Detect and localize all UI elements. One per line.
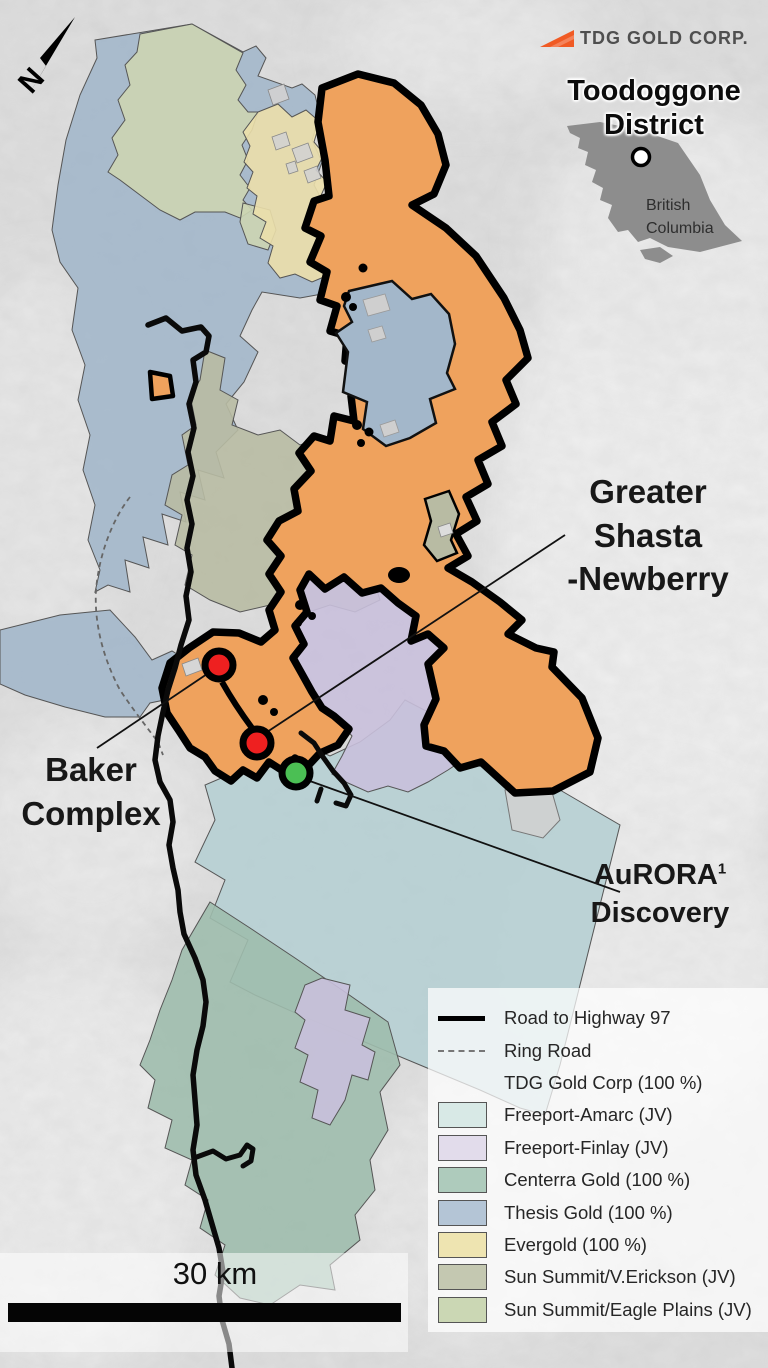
legend-row-ring-road: Ring Road (438, 1034, 768, 1066)
legend-row-road: Road to Highway 97 (438, 1002, 768, 1034)
verickson-swatch (438, 1264, 504, 1290)
map-title: Toodoggone District (538, 74, 768, 142)
legend-panel: Road to Highway 97 Ring Road TDG Gold Co… (428, 988, 768, 1332)
shasta-line2: Shasta (528, 514, 768, 558)
map-title-line1: Toodoggone (538, 74, 768, 108)
district-location-dot (633, 149, 650, 166)
road-line-swatch (438, 1016, 504, 1021)
legend-row-tdg: TDG Gold Corp (100 %) (438, 1067, 768, 1099)
legend-row-eagle-plains: Sun Summit/Eagle Plains (JV) (438, 1294, 768, 1326)
map-title-line2: District (538, 108, 768, 142)
brand-logo-text: TDG GOLD CORP. (580, 28, 749, 49)
map-figure: TDG GOLD CORP. Toodoggone District Briti… (0, 0, 768, 1368)
eagle-plains-swatch (438, 1297, 504, 1323)
legend-label: Freeport-Finlay (JV) (504, 1137, 668, 1159)
legend-row-thesis: Thesis Gold (100 %) (438, 1196, 768, 1228)
baker-line2: Complex (0, 792, 182, 836)
bc-label-line2: Columbia (646, 217, 714, 240)
amarc-swatch (438, 1102, 504, 1128)
legend-label: Sun Summit/V.Erickson (JV) (504, 1266, 736, 1288)
evergold-swatch (438, 1232, 504, 1258)
scale-bar-label: 30 km (160, 1256, 270, 1292)
legend-label: Freeport-Amarc (JV) (504, 1104, 673, 1126)
label-greater-shasta-newberry: Greater Shasta -Newberry (528, 470, 768, 601)
marker-shasta-deposit (243, 729, 271, 757)
marker-baker-deposit (205, 651, 233, 679)
centerra-swatch (438, 1167, 504, 1193)
legend-label: Thesis Gold (100 %) (504, 1202, 673, 1224)
legend-row-amarc: Freeport-Amarc (JV) (438, 1099, 768, 1131)
aurora-line1: AuRORA1 (552, 856, 768, 894)
legend-label: Road to Highway 97 (504, 1007, 671, 1029)
thesis-swatch (438, 1200, 504, 1226)
legend-row-centerra: Centerra Gold (100 %) (438, 1164, 768, 1196)
legend-label: TDG Gold Corp (100 %) (504, 1072, 702, 1094)
legend-label: Centerra Gold (100 %) (504, 1169, 690, 1191)
legend-label: Sun Summit/Eagle Plains (JV) (504, 1299, 752, 1321)
shasta-line1: Greater (528, 470, 768, 514)
bc-inset-label: British Columbia (646, 194, 714, 240)
legend-label: Ring Road (504, 1040, 591, 1062)
brand-logo: TDG GOLD CORP. (540, 28, 768, 49)
shasta-line3: -Newberry (528, 557, 768, 601)
bc-label-line1: British (646, 194, 714, 217)
tdg-logo-icon (540, 30, 574, 48)
finlay-swatch (438, 1135, 504, 1161)
legend-label: Evergold (100 %) (504, 1234, 647, 1256)
legend-row-finlay: Freeport-Finlay (JV) (438, 1132, 768, 1164)
label-aurora-discovery: AuRORA1 Discovery (552, 856, 768, 933)
legend-row-verickson: Sun Summit/V.Erickson (JV) (438, 1261, 768, 1293)
aurora-line2: Discovery (552, 894, 768, 932)
marker-aurora-discovery (282, 759, 310, 787)
baker-line1: Baker (0, 748, 182, 792)
legend-row-evergold: Evergold (100 %) (438, 1229, 768, 1261)
ring-road-line-swatch (438, 1050, 504, 1052)
claim-tdg-west-inlier (150, 372, 173, 399)
scale-bar (8, 1303, 401, 1322)
aurora-name: AuRORA (594, 859, 718, 891)
label-baker-complex: Baker Complex (0, 748, 182, 835)
aurora-footnote-mark: 1 (718, 860, 726, 877)
